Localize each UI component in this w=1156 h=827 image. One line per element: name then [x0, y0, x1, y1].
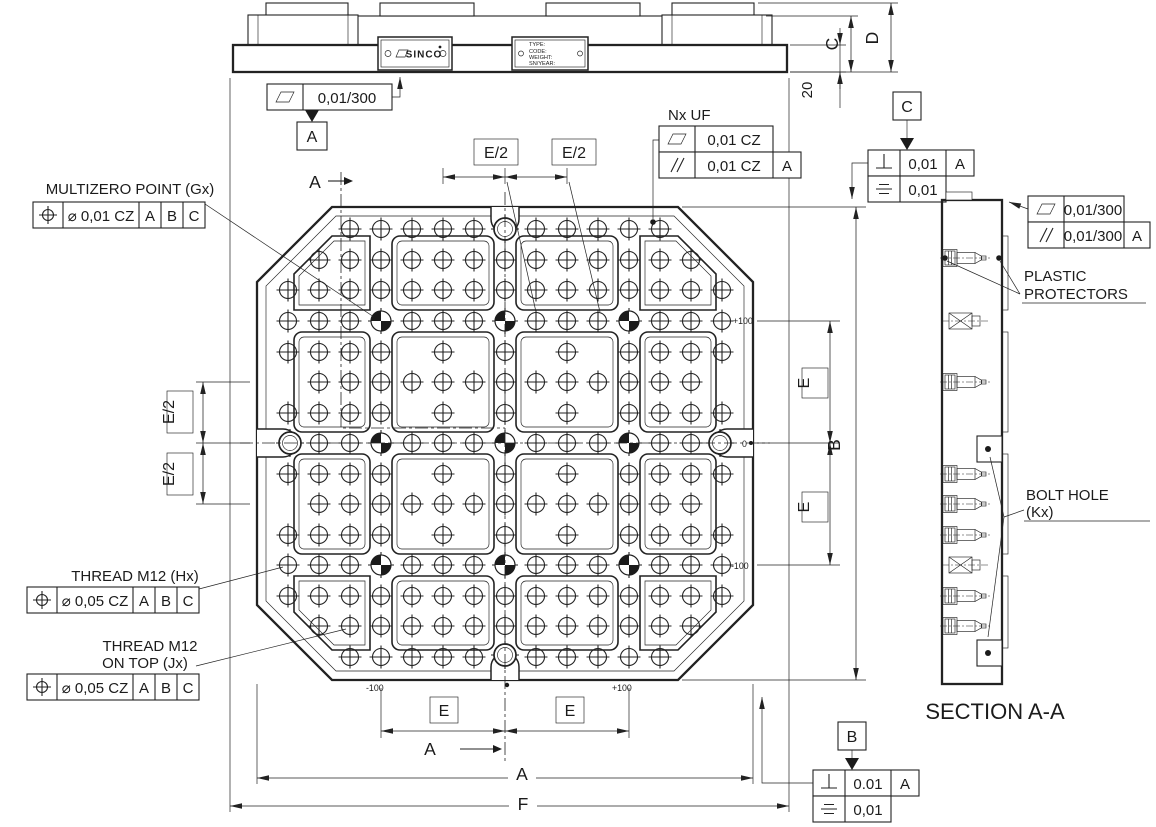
- dim-f-label: F: [518, 794, 529, 814]
- coord-right-top: +100: [733, 316, 753, 326]
- datum-c-symmetry-value: 0,01: [908, 182, 937, 199]
- section-flatness-value: 0,01/300: [1064, 202, 1122, 219]
- thread-j-datum-2: B: [161, 680, 171, 697]
- datum-triangle-icon: [305, 110, 319, 122]
- thread-h-datum-3: C: [183, 593, 194, 610]
- dim-20-label: 20: [799, 82, 816, 99]
- datum-b-callout: B 0.01 A 0,01: [762, 697, 919, 822]
- dim-e2-left-2: E/2: [161, 462, 178, 486]
- thread-h-datum-2: B: [161, 593, 171, 610]
- section-fcf-callout: 0,01/300 0,01/300 A: [1009, 196, 1150, 248]
- datum-b-perp-datum: A: [900, 776, 910, 793]
- thread-h-tolerance: ⌀ 0,05 CZ: [62, 593, 129, 610]
- datum-b-symmetry-value: 0,01: [853, 802, 882, 819]
- thread-h-title: THREAD M12 (Hx): [71, 568, 199, 585]
- clamp-feature: [942, 312, 988, 331]
- thread-j-title-2: ON TOP (Jx): [102, 655, 188, 672]
- datum-triangle-icon: [900, 138, 914, 150]
- plastic-label-2: PROTECTORS: [1024, 286, 1128, 303]
- datum-a-label: A: [307, 129, 318, 146]
- bolt-hole-feature: [940, 587, 992, 606]
- nameplate-type: TYPE:: [529, 42, 546, 48]
- multizero-title: MULTIZERO POINT (Gx): [46, 181, 215, 198]
- section-title: SECTION A-A: [925, 699, 1065, 724]
- dim-b-label: B: [824, 439, 844, 451]
- thread-h-datum-1: A: [139, 593, 149, 610]
- dim-a-label: A: [516, 764, 528, 784]
- logo-text: SINCO: [406, 50, 443, 61]
- multizero-datum-3: C: [189, 208, 200, 225]
- datum-c-label: C: [901, 99, 913, 116]
- thread-j-tolerance: ⌀ 0,05 CZ: [62, 680, 129, 697]
- logo-registered-dot: [439, 46, 442, 49]
- thread-j-title-1: THREAD M12: [102, 638, 197, 655]
- dim-e2-top-2: E/2: [562, 145, 586, 162]
- section-arrow-top-icon: [344, 177, 353, 185]
- dim-e-right-1: E: [796, 378, 813, 389]
- logo-plate: SINCO: [378, 37, 452, 70]
- thread-j-datum-3: C: [183, 680, 194, 697]
- bolt-hole-feature: [940, 617, 992, 636]
- dim-e2-top-1: E/2: [484, 145, 508, 162]
- plastic-protector-dot: [996, 255, 1002, 261]
- datum-triangle-icon: [845, 758, 859, 770]
- dim-c-label: C: [822, 38, 842, 51]
- datum-b-perp-value: 0.01: [853, 776, 882, 793]
- nx-uf-title: Nx UF: [668, 107, 711, 124]
- flatness-callout-top-view: 0,01/300 A: [267, 77, 400, 150]
- datum-c-callout: C 0,01 A 0,01: [852, 92, 974, 202]
- nx-uf-parallelism-value: 0,01 CZ: [707, 158, 760, 175]
- bolt-hole-feature: [940, 495, 992, 514]
- multizero-datum-2: B: [167, 208, 177, 225]
- side-elevation-view: SINCO TYPE: CODE: WEIGHT: SN/YEAR: D C 2…: [233, 3, 898, 150]
- section-parallelism-value: 0,01/300: [1064, 228, 1122, 245]
- bolt-hole-feature: [940, 465, 992, 484]
- section-view: 0,01/300 0,01/300 A PLASTIC PROTECTORS B…: [925, 192, 1150, 724]
- coord-right-bottom: -100: [731, 561, 749, 571]
- nameplate: TYPE: CODE: WEIGHT: SN/YEAR:: [512, 37, 588, 70]
- dim-e2-left-1: E/2: [161, 400, 178, 424]
- nx-uf-datum: A: [782, 158, 792, 175]
- datum-c-perp-datum: A: [955, 156, 965, 173]
- nameplate-snyear: SN/YEAR:: [529, 61, 556, 67]
- section-arrow-label-top: A: [309, 172, 321, 192]
- dim-d-label: D: [862, 32, 882, 45]
- plastic-protector-dot: [942, 255, 948, 261]
- bolt-hole-feature: [940, 373, 992, 392]
- dim-e-bottom-1: E: [439, 703, 450, 720]
- dim-e-right-2: E: [796, 502, 813, 513]
- dim-e-bottom-2: E: [565, 703, 576, 720]
- drawing-sheet: SINCO TYPE: CODE: WEIGHT: SN/YEAR: D C 2…: [0, 0, 1156, 827]
- section-parallelism-datum: A: [1132, 228, 1142, 245]
- clamp-feature: [942, 556, 988, 575]
- bolt-hole-label-1: BOLT HOLE: [1026, 487, 1109, 504]
- bolt-hole-label-2: (Kx): [1026, 504, 1054, 521]
- thread-h-callout: THREAD M12 (Hx) ⌀ 0,05 CZ A B C: [27, 567, 283, 613]
- flatness-value: 0,01/300: [318, 90, 376, 107]
- plan-view: +100 0 -100 -100 +100: [240, 172, 770, 762]
- multizero-tolerance: ⌀ 0,01 CZ: [68, 208, 135, 225]
- nx-uf-flatness-value: 0,01 CZ: [707, 132, 760, 149]
- bolt-hole-label: BOLT HOLE (Kx): [988, 457, 1150, 637]
- section-arrow-label-bottom: A: [424, 739, 436, 759]
- coord-right-mid: 0: [742, 439, 747, 449]
- technical-drawing: SINCO TYPE: CODE: WEIGHT: SN/YEAR: D C 2…: [0, 0, 1156, 827]
- thread-j-datum-1: A: [139, 680, 149, 697]
- section-arrow-bottom-icon: [493, 745, 502, 753]
- bolt-hole-feature: [940, 526, 992, 545]
- datum-b-label: B: [847, 729, 858, 746]
- plastic-label-1: PLASTIC: [1024, 268, 1087, 285]
- multizero-datum-1: A: [145, 208, 155, 225]
- datum-c-perp-value: 0,01: [908, 156, 937, 173]
